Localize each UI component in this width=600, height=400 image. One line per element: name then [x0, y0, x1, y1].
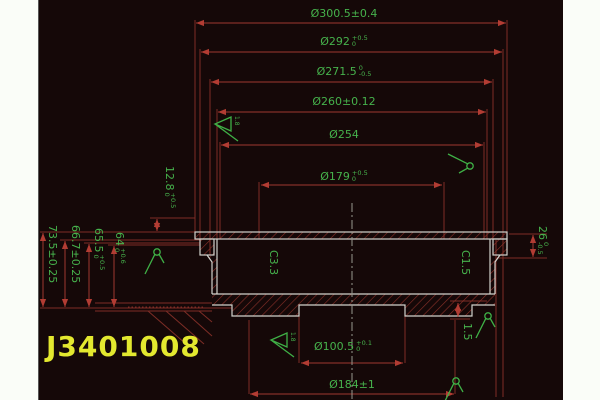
- dim-dia-184: Ø184±1: [329, 379, 375, 391]
- machining-check-icon: [476, 313, 495, 338]
- chamfer-c1-5: C1.5: [459, 250, 472, 275]
- dim-dia-260: Ø260±0.12: [312, 96, 375, 108]
- dim-height-64: 64+0.60: [113, 232, 126, 264]
- dim-height-1-5: 1.5: [461, 323, 474, 341]
- dim-dia-300: Ø300.5±0.4: [311, 8, 378, 20]
- dim-dia-254: Ø254: [329, 129, 359, 141]
- part-number-label: J3401008: [46, 330, 201, 363]
- dim-dia-292: Ø292+0.50: [320, 36, 367, 48]
- dim-height-12-8: 12.8+0.50: [163, 166, 176, 208]
- dim-height-73-5: 73.5±0.25: [46, 225, 59, 283]
- machining-check-icon: [444, 378, 463, 400]
- dim-dia-179: Ø179+0.50: [320, 171, 367, 183]
- dim-dia-271: Ø271.50-0.5: [317, 66, 372, 78]
- dim-height-66-7: 66.7±0.25: [69, 225, 82, 283]
- engineering-drawing-canvas: Ø300.5±0.4 Ø292+0.50 Ø271.50-0.5 Ø260±0.…: [0, 0, 600, 400]
- roughness-value-top: 1.8: [233, 116, 239, 126]
- chamfer-c3-3: C3.3: [267, 250, 280, 275]
- dim-dia-100: Ø100.5+0.10: [314, 341, 372, 353]
- roughness-value-bottom: 1.8: [289, 332, 295, 342]
- dim-height-26: 260-0.5: [536, 226, 549, 255]
- dim-height-65-5: 65.5+0.50: [92, 228, 105, 270]
- machining-check-icon: [145, 249, 164, 274]
- machining-check-icon: [448, 154, 473, 173]
